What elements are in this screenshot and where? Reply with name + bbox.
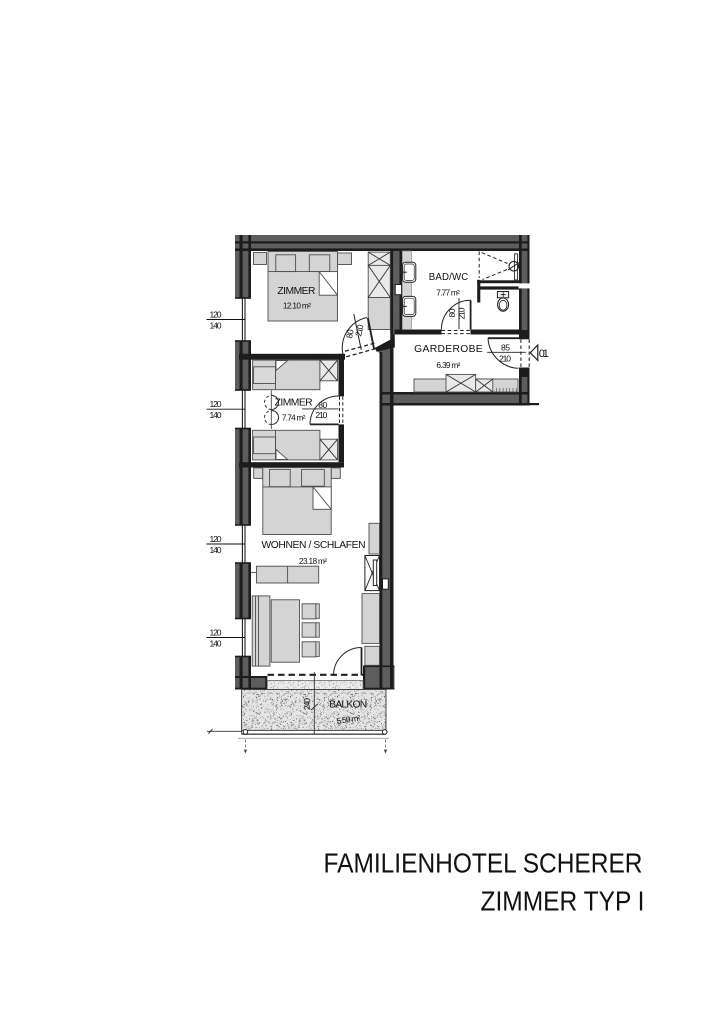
svg-text:GARDEROBE: GARDEROBE — [414, 344, 483, 355]
svg-text:ZIMMER: ZIMMER — [277, 286, 315, 297]
svg-text:FAMILIENHOTEL SCHERER: FAMILIENHOTEL SCHERER — [324, 846, 643, 878]
svg-text:210: 210 — [315, 410, 327, 420]
svg-text:210: 210 — [353, 323, 365, 337]
svg-text:6.39 m²: 6.39 m² — [436, 360, 460, 370]
svg-text:85: 85 — [501, 342, 510, 352]
svg-text:ZIMMER TYP I: ZIMMER TYP I — [481, 884, 645, 916]
svg-text:210: 210 — [457, 307, 467, 319]
svg-text:140: 140 — [210, 321, 222, 331]
svg-text:140: 140 — [210, 410, 222, 420]
svg-text:7.74 m²: 7.74 m² — [282, 412, 306, 422]
svg-text:120: 120 — [210, 627, 222, 637]
svg-text:23.18 m²: 23.18 m² — [299, 556, 327, 566]
svg-text:BALKON: BALKON — [329, 700, 367, 711]
svg-text:ZIMMER: ZIMMER — [275, 397, 313, 408]
svg-text:120: 120 — [210, 399, 222, 409]
svg-text:120: 120 — [210, 534, 222, 544]
svg-text:7.77 m²: 7.77 m² — [436, 288, 460, 298]
svg-text:BAD/WC: BAD/WC — [429, 272, 469, 283]
svg-text:80: 80 — [318, 400, 327, 410]
svg-text:WOHNEN / SCHLAFEN: WOHNEN / SCHLAFEN — [262, 540, 366, 551]
svg-text:240: 240 — [302, 698, 312, 710]
svg-text:12.10 m²: 12.10 m² — [283, 301, 311, 311]
svg-text:210: 210 — [499, 353, 511, 363]
svg-text:140: 140 — [210, 545, 222, 555]
svg-text:01: 01 — [539, 348, 549, 360]
svg-text:120: 120 — [210, 309, 222, 319]
svg-text:140: 140 — [210, 639, 222, 649]
svg-text:80: 80 — [447, 308, 457, 317]
